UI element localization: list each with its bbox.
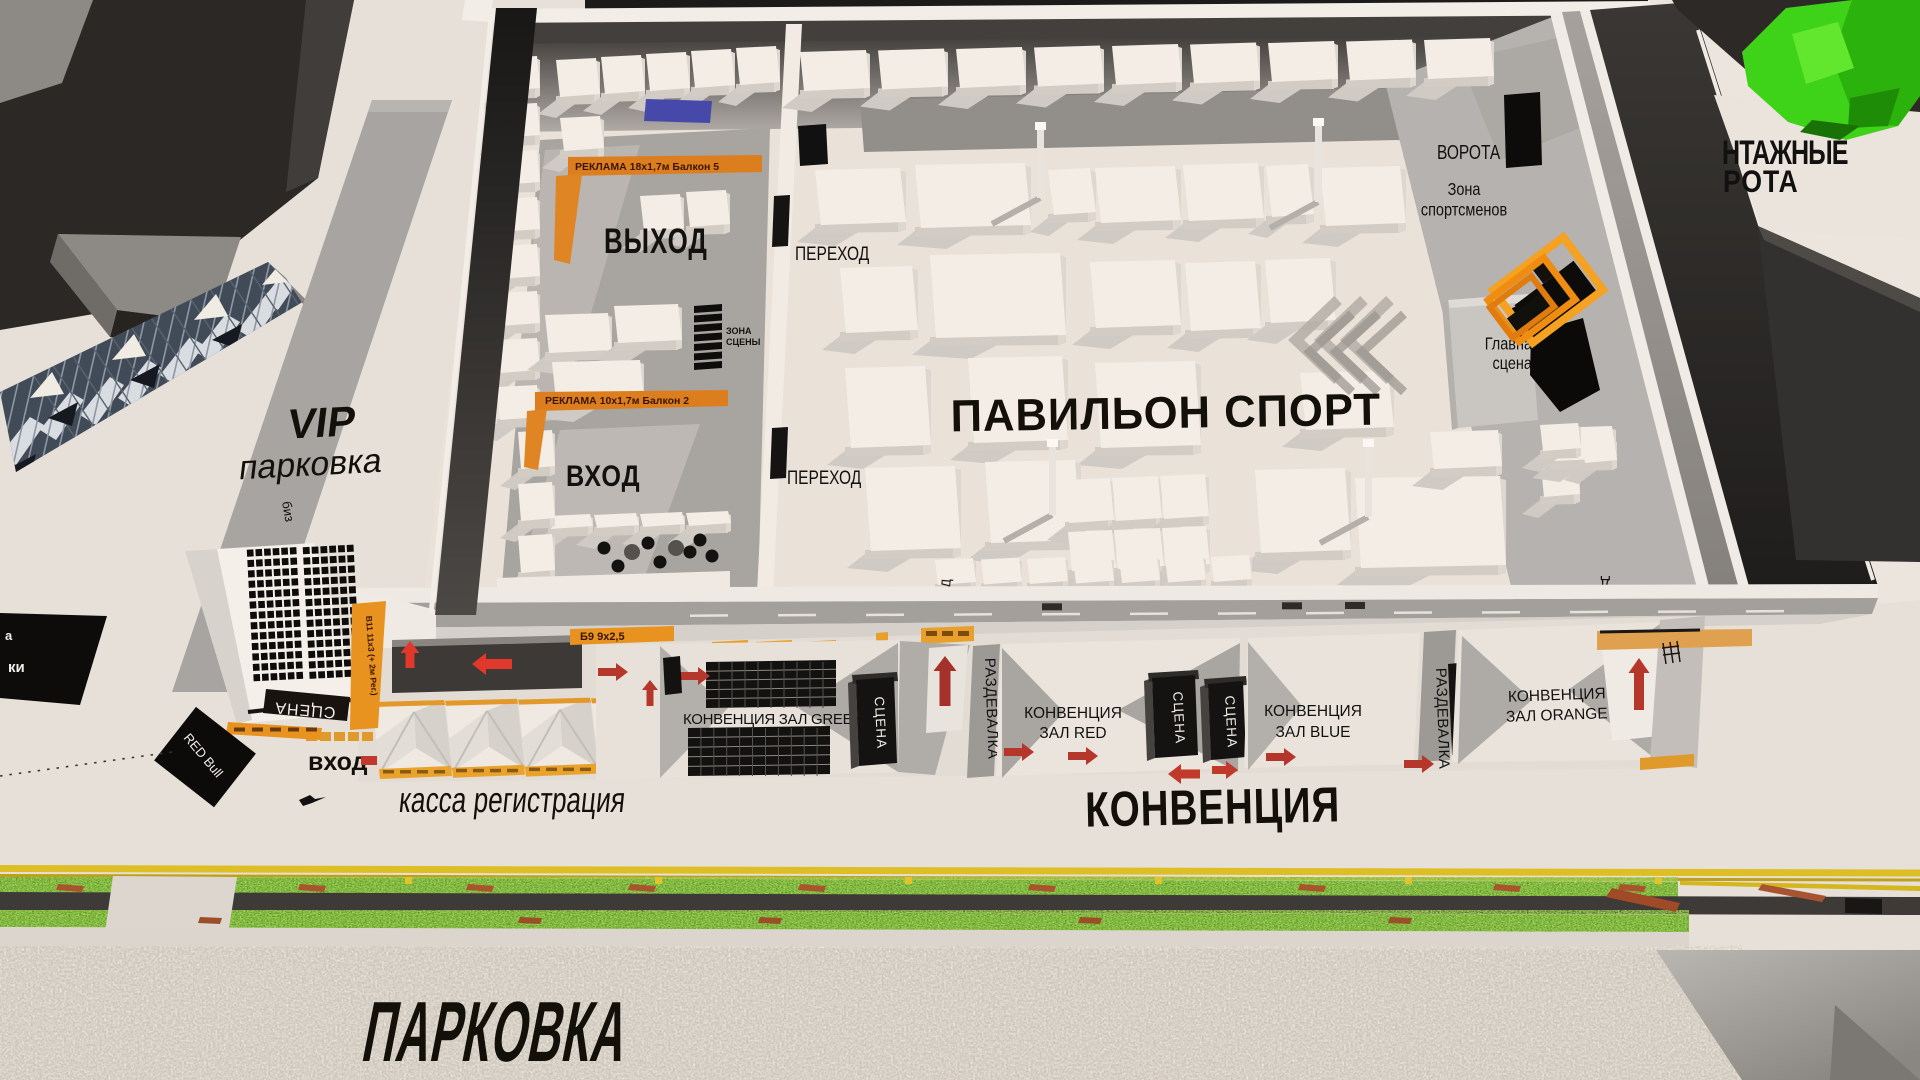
svg-text:ВЫХОД: ВЫХОД bbox=[604, 221, 708, 261]
svg-text:ПАВИЛЬОН СПОРТ: ПАВИЛЬОН СПОРТ bbox=[950, 385, 1381, 441]
svg-text:а: а bbox=[5, 628, 13, 643]
svg-text:ЗАЛ RED: ЗАЛ RED bbox=[1039, 725, 1106, 742]
svg-text:ЗАЛ BLUE: ЗАЛ BLUE bbox=[1275, 724, 1350, 741]
svg-text:КОНВЕНЦИЯ: КОНВЕНЦИЯ bbox=[1085, 778, 1341, 838]
svg-text:РЕКЛАМА 10х1,7м Балкон 2: РЕКЛАМА 10х1,7м Балкон 2 bbox=[545, 395, 689, 407]
svg-text:вход: вход bbox=[308, 748, 368, 776]
svg-text:ЗАЛ ORANGE: ЗАЛ ORANGE bbox=[1506, 705, 1608, 726]
svg-text:ВХОД: ВХОД bbox=[566, 459, 641, 493]
svg-text:ПАРКОВКА: ПАРКОВКА bbox=[356, 984, 637, 1080]
svg-text:ПЕРЕХОД: ПЕРЕХОД bbox=[787, 466, 861, 488]
svg-text:СЦЕНА: СЦЕНА bbox=[1170, 691, 1188, 744]
svg-text:спортсменов: спортсменов bbox=[1421, 201, 1507, 219]
svg-text:сцена: сцена bbox=[1493, 355, 1533, 373]
svg-text:ВОРОТА: ВОРОТА bbox=[1437, 141, 1500, 163]
svg-text:КОНВЕНЦИЯ ЗАЛ GREEN: КОНВЕНЦИЯ ЗАЛ GREEN bbox=[683, 711, 863, 728]
svg-text:СЦЕНЫ: СЦЕНЫ bbox=[726, 337, 761, 347]
svg-text:ЗОНА: ЗОНА bbox=[726, 326, 752, 336]
svg-text:Зона: Зона bbox=[1448, 181, 1481, 199]
svg-text:Б9 9х2,5: Б9 9х2,5 bbox=[580, 631, 625, 643]
svg-text:СЦЕНА: СЦЕНА bbox=[872, 696, 890, 749]
svg-text:КОНВЕНЦИЯ: КОНВЕНЦИЯ bbox=[1024, 705, 1122, 722]
svg-text:парковка: парковка bbox=[237, 442, 385, 488]
svg-text:касса регистрация: касса регистрация bbox=[397, 780, 627, 820]
svg-text:VIP: VIP bbox=[285, 397, 358, 448]
svg-text:РЕКЛАМА 18х1,7м Балкон 5: РЕКЛАМА 18х1,7м Балкон 5 bbox=[575, 161, 719, 173]
svg-text:ки: ки bbox=[8, 659, 25, 676]
svg-text:РАЗДЕВАЛКА: РАЗДЕВАЛКА bbox=[1432, 668, 1453, 770]
svg-text:КОНВЕНЦИЯ: КОНВЕНЦИЯ bbox=[1264, 703, 1362, 720]
svg-text:КОНВЕНЦИЯ: КОНВЕНЦИЯ bbox=[1508, 685, 1606, 705]
svg-text:СЦЕНА: СЦЕНА bbox=[1222, 695, 1240, 748]
svg-text:ПЕРЕХОД: ПЕРЕХОД bbox=[795, 242, 869, 264]
svg-text:РОТА: РОТА bbox=[1723, 165, 1799, 200]
